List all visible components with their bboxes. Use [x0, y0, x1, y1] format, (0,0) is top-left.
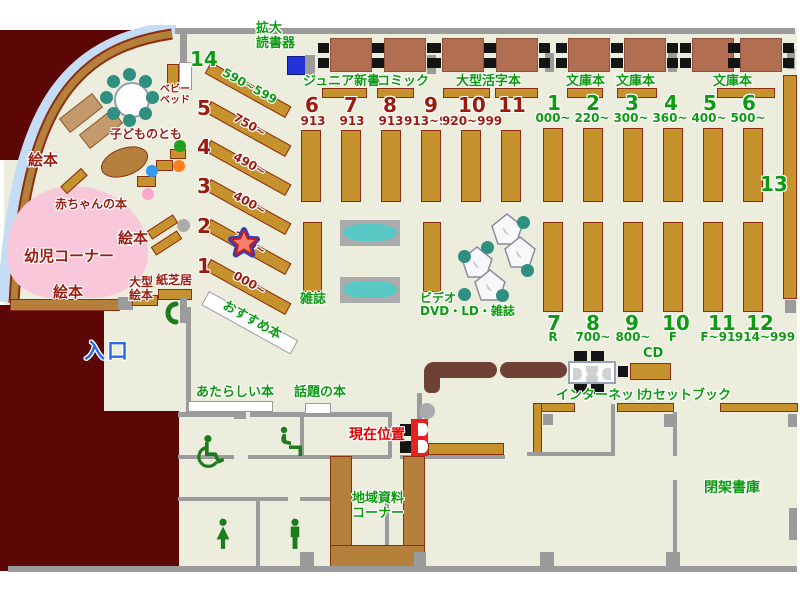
reading-table: [740, 38, 782, 72]
service-counter: [500, 362, 567, 378]
cd-shelf: [630, 363, 671, 380]
corridor-wall: [186, 307, 191, 413]
magazines-label: 雑誌: [300, 293, 326, 308]
toilet-wall: [256, 497, 260, 567]
stool-green: [174, 140, 186, 152]
bookshelf: [743, 222, 763, 312]
stacks-wall: [673, 412, 677, 456]
bookshelf: [703, 222, 723, 312]
bookshelf: [501, 130, 521, 202]
bookshelf: [663, 128, 683, 202]
section-range: 300~: [609, 112, 653, 125]
bookshelf: [583, 222, 603, 312]
carrel-chair: [517, 216, 530, 229]
section-range: 220~: [570, 112, 614, 125]
monitor: [602, 368, 611, 380]
bookshelf: [421, 130, 441, 202]
internet-table: [568, 361, 616, 384]
stool-orange: [173, 160, 185, 172]
marker-seat: [418, 440, 428, 453]
section-range: R: [531, 331, 575, 344]
closed-stacks-label: 閉架書庫: [704, 481, 760, 497]
reading-table: [384, 38, 426, 72]
phone-icon: [162, 300, 180, 326]
bookshelf: [623, 222, 643, 312]
monitor: [573, 368, 582, 380]
round-table: [114, 82, 150, 118]
section-range: 913: [291, 115, 335, 128]
newspaper-shelf: [428, 443, 504, 455]
baby-books-label: 赤ちゃんの本: [55, 198, 127, 211]
av-shelf: [423, 222, 441, 292]
carrel-shelf: [533, 403, 542, 456]
large-picture-books-label: 大型 絵本: [129, 276, 153, 303]
man-icon: [286, 518, 304, 550]
picture-books-label: 絵本: [118, 230, 148, 247]
magnifier-reader-label: 拡大 読書器: [256, 22, 295, 51]
study-carrels: [445, 205, 555, 315]
reading-table: [442, 38, 484, 72]
bookshelf: [461, 130, 481, 202]
stool-blue: [146, 165, 158, 177]
section-range: 500~: [726, 112, 770, 125]
bottom-post: [414, 552, 426, 567]
bottom-post: [300, 552, 314, 567]
monitor: [586, 373, 598, 382]
toilet-wall: [178, 497, 288, 501]
reading-table: [330, 38, 372, 72]
bookshelf: [623, 128, 643, 202]
bottom-post: [666, 552, 680, 567]
bookshelf: [381, 130, 401, 202]
topic-books-label: 話題の本: [294, 386, 346, 401]
shelf13-post: [785, 300, 796, 313]
magnifier-post: [305, 55, 315, 75]
round-table-chair: [123, 68, 136, 81]
carrel-wall: [527, 452, 615, 456]
baby-change-icon: [276, 426, 304, 456]
bookshelf: [663, 222, 683, 312]
reading-table: [568, 38, 610, 72]
kodomo-no-tomo-label: 子どものとも: [110, 128, 182, 141]
section-range: F: [651, 331, 695, 344]
table-post-3: [668, 53, 677, 72]
magazine-shelf: [303, 222, 322, 292]
bottom-post: [540, 552, 554, 567]
magnifier-reader-icon: [287, 56, 306, 75]
section-number: 11: [498, 94, 526, 116]
bookshelf: [583, 128, 603, 202]
marker-seat: [418, 423, 428, 436]
local-corner-label: 地域資料 コーナー: [350, 492, 406, 521]
column: [419, 403, 435, 419]
cassette-label: カセットブック: [640, 389, 731, 404]
reading-table: [496, 38, 538, 72]
cd-label: CD: [643, 347, 663, 362]
toilet-wall: [178, 412, 234, 417]
section-range: 000~: [531, 112, 575, 125]
bookshelf: [543, 128, 563, 202]
local-corner-shelf: [330, 545, 425, 567]
carrel-shelf: [617, 403, 674, 412]
exterior-block-bottomleft2: [104, 411, 179, 571]
carrel-post: [788, 414, 797, 427]
step-shelf: [156, 160, 173, 171]
table-post-1: [427, 55, 436, 74]
section-range: 360~: [648, 112, 692, 125]
topic-books-shelf: [305, 403, 331, 414]
internet-chair-side: [618, 366, 628, 377]
section-range: 700~: [571, 331, 615, 344]
section-range: 914~999: [734, 331, 796, 344]
toilet-wall: [250, 412, 304, 417]
library-floor-map: 拡大 読書器 ジュニア新書 コミック 大型活字本 文庫本 文庫本 文庫本 6 7…: [0, 0, 800, 600]
section-range: 913: [330, 115, 374, 128]
picture-books-label: 絵本: [28, 152, 58, 169]
section-range: 800~: [611, 331, 655, 344]
kamishibai-label: 紙芝居: [156, 274, 192, 287]
section-range: 920~999: [442, 115, 500, 128]
carrel-wall: [611, 404, 615, 454]
display-curved: [343, 281, 397, 298]
carrel-shelf: [720, 403, 798, 412]
children-entry-wall: [180, 33, 187, 63]
column: [177, 219, 190, 232]
section-number-13: 13: [760, 173, 788, 195]
woman-icon: [213, 518, 233, 550]
display-curved: [343, 224, 397, 241]
right-wall: [789, 508, 797, 540]
toilet-wall: [248, 455, 391, 459]
wheelchair-icon: [194, 434, 226, 468]
picture-books-label: 絵本: [53, 284, 83, 301]
entrance-label: 入口: [84, 340, 130, 364]
service-counter: [424, 362, 440, 393]
current-position-label: 現在位置: [349, 428, 405, 444]
bookshelf: [341, 130, 361, 202]
bookshelf: [703, 128, 723, 202]
table-post-2: [545, 53, 554, 72]
bookshelf: [301, 130, 321, 202]
internet-label: インターネット: [556, 389, 647, 404]
reading-table: [624, 38, 666, 72]
stool-pink: [142, 188, 154, 200]
toddler-corner-label: 幼児コーナー: [24, 248, 114, 265]
carrel-post: [543, 414, 553, 425]
section-range: 400~: [687, 112, 731, 125]
star-marker-icon: [228, 227, 260, 259]
baby-bed-label: ベビー ベッド: [160, 84, 190, 106]
baby-bed-shelf: [167, 64, 179, 86]
new-books-shelf: [188, 401, 273, 412]
new-books-label: あたらしい本: [196, 386, 274, 401]
step-shelf: [137, 176, 156, 187]
